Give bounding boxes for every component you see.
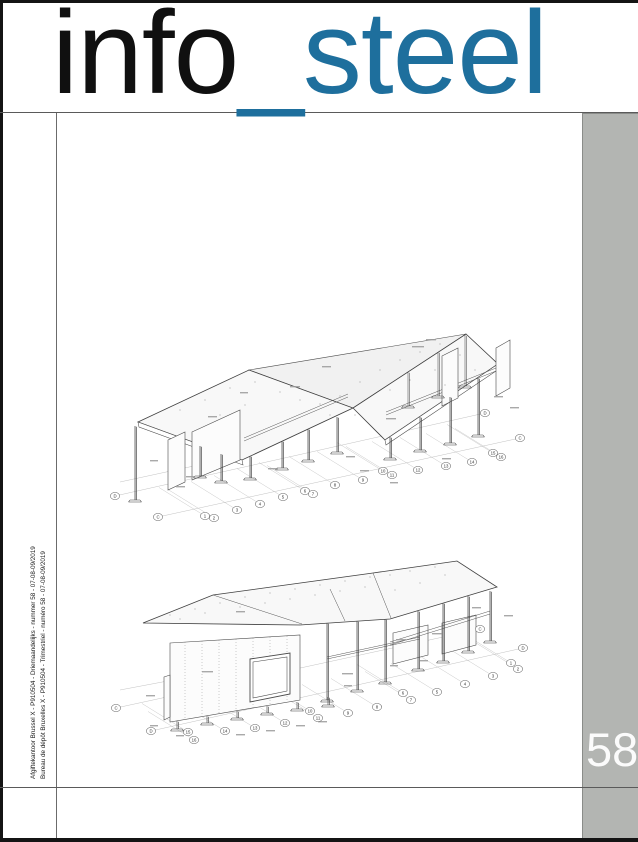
- grid-bubble: 11: [387, 471, 396, 478]
- grid-bubble-label: 16: [499, 455, 504, 460]
- grid-bubble: 13: [250, 724, 259, 731]
- column-base-plate: [291, 709, 304, 711]
- grid-bubble: 15: [488, 449, 497, 456]
- canopy-structure: [138, 334, 510, 490]
- grid-bubble: 7: [406, 696, 415, 703]
- grid-bubble: 7: [308, 490, 317, 497]
- grid-bubble: D: [110, 492, 119, 499]
- grid-bubble: 3: [232, 506, 241, 513]
- frame-left: [0, 0, 3, 842]
- grid-bubble-label: 16: [192, 738, 197, 743]
- frame-bottom: [0, 838, 638, 842]
- grid-bubble-label: 15: [186, 730, 191, 735]
- grid-bubble: 9: [358, 476, 367, 483]
- column-base-plate: [437, 661, 450, 663]
- column-base-plate: [201, 723, 214, 725]
- column: [282, 441, 283, 468]
- column-base-plate: [129, 500, 142, 502]
- column: [207, 716, 208, 723]
- grid-bubble: 6: [398, 689, 407, 696]
- grid-bubble-label: D: [521, 646, 524, 651]
- column-base-plate: [302, 460, 315, 462]
- grid-bubble-label: 10: [381, 469, 386, 474]
- column-base-plate: [244, 478, 257, 480]
- column: [135, 426, 136, 500]
- grid-bubble: D: [480, 409, 489, 416]
- masthead-logo: info_steel: [52, 0, 547, 112]
- grid-bubble-label: 14: [470, 460, 475, 465]
- issue-number: 58: [586, 726, 638, 773]
- grid-bubble: 5: [278, 493, 287, 500]
- column: [237, 711, 238, 718]
- column-base-plate: [472, 435, 485, 437]
- grid-bubble-label: 14: [223, 729, 228, 734]
- grid-bubble: 8: [330, 481, 339, 488]
- grid-bubble: 8: [372, 703, 381, 710]
- grid-bubble: D: [146, 727, 155, 734]
- left-column-divider: [56, 112, 57, 838]
- grid-bubble: 4: [460, 680, 469, 687]
- grid-bubble-label: D: [149, 729, 152, 734]
- grid-bubble: C: [111, 704, 120, 711]
- grid-bubble: D: [518, 644, 527, 651]
- grid-bubble: 11: [313, 714, 322, 721]
- column: [250, 456, 251, 478]
- grid-bubble: 16: [189, 736, 198, 743]
- column-base-plate: [321, 700, 334, 702]
- grid-bubble-label: 12: [283, 721, 288, 726]
- column: [337, 417, 338, 452]
- grid-bubble-label: 13: [444, 464, 449, 469]
- column: [490, 591, 491, 641]
- grid-bubble: 2: [209, 514, 218, 521]
- right-sidebar: 58: [582, 113, 638, 838]
- magazine-cover: info_steel 58 Afgiftekantoor Brussel X -…: [0, 0, 638, 842]
- column-base-plate: [484, 641, 497, 643]
- masthead-word-steel: _steel: [238, 0, 547, 119]
- grid-bubble-label: 13: [253, 726, 258, 731]
- column: [267, 706, 268, 713]
- imprint-block: Afgiftekantoor Brussel X - P910504 - Dri…: [29, 507, 48, 779]
- grid-bubble-label: C: [156, 515, 159, 520]
- grid-bubble-label: 11: [390, 473, 395, 478]
- grid-bubble-label: C: [114, 706, 117, 711]
- grid-bubble: 10: [378, 467, 387, 474]
- column-base-plate: [414, 450, 427, 452]
- grid-bubble: 5: [432, 688, 441, 695]
- grid-bubble-label: 11: [316, 716, 321, 721]
- column: [308, 429, 309, 460]
- column-base-plate: [331, 452, 344, 454]
- grid-bubble-label: D: [113, 494, 116, 499]
- grid-bubble-label: 10: [308, 709, 313, 714]
- grid-bubble-label: C: [518, 436, 521, 441]
- imprint-line-fr: Bureau de dépôt Bruxelles X - P910504 - …: [39, 507, 49, 779]
- grid-bubble-label: 15: [491, 451, 496, 456]
- grid-bubble-label: 12: [416, 468, 421, 473]
- column-base-plate: [444, 443, 457, 445]
- grid-bubble: 12: [413, 466, 422, 473]
- grid-bubble-label: C: [478, 627, 481, 632]
- grid-bubble: 10: [305, 707, 314, 714]
- grid-bubble-label: D: [483, 411, 486, 416]
- footer-rule: [0, 787, 638, 788]
- column: [450, 397, 451, 443]
- masthead-word-info: info: [52, 0, 238, 119]
- imprint-line-nl: Afgiftekantoor Brussel X - P910504 - Dri…: [29, 507, 39, 779]
- grid-bubble: 13: [441, 462, 450, 469]
- column: [478, 378, 479, 435]
- column-base-plate: [412, 669, 425, 671]
- grid-bubble: 3: [488, 672, 497, 679]
- column: [385, 619, 386, 682]
- grid-bubble: 16: [496, 453, 505, 460]
- grid-bubble: C: [153, 513, 162, 520]
- column: [327, 623, 328, 700]
- grid-bubble: 1: [506, 659, 515, 666]
- grid-bubble: 1: [200, 512, 209, 519]
- grid-bubble: 9: [343, 709, 352, 716]
- grid-bubble: C: [475, 625, 484, 632]
- grid-bubble: 4: [255, 500, 264, 507]
- column-base-plate: [384, 458, 397, 460]
- column-base-plate: [462, 651, 475, 653]
- axonometric-drawing-bottom: CD12345678910111213141516CD: [90, 545, 550, 775]
- grid-bubble: C: [515, 434, 524, 441]
- axonometric-drawing-top: DC12345678910111213141516DC: [90, 160, 550, 540]
- grid-bubble: 14: [467, 458, 476, 465]
- grid-bubble: 12: [280, 719, 289, 726]
- grid-bubble: 14: [220, 727, 229, 734]
- grid-bubble: 2: [513, 665, 522, 672]
- column-base-plate: [322, 705, 335, 707]
- grid-bubble: 15: [183, 728, 192, 735]
